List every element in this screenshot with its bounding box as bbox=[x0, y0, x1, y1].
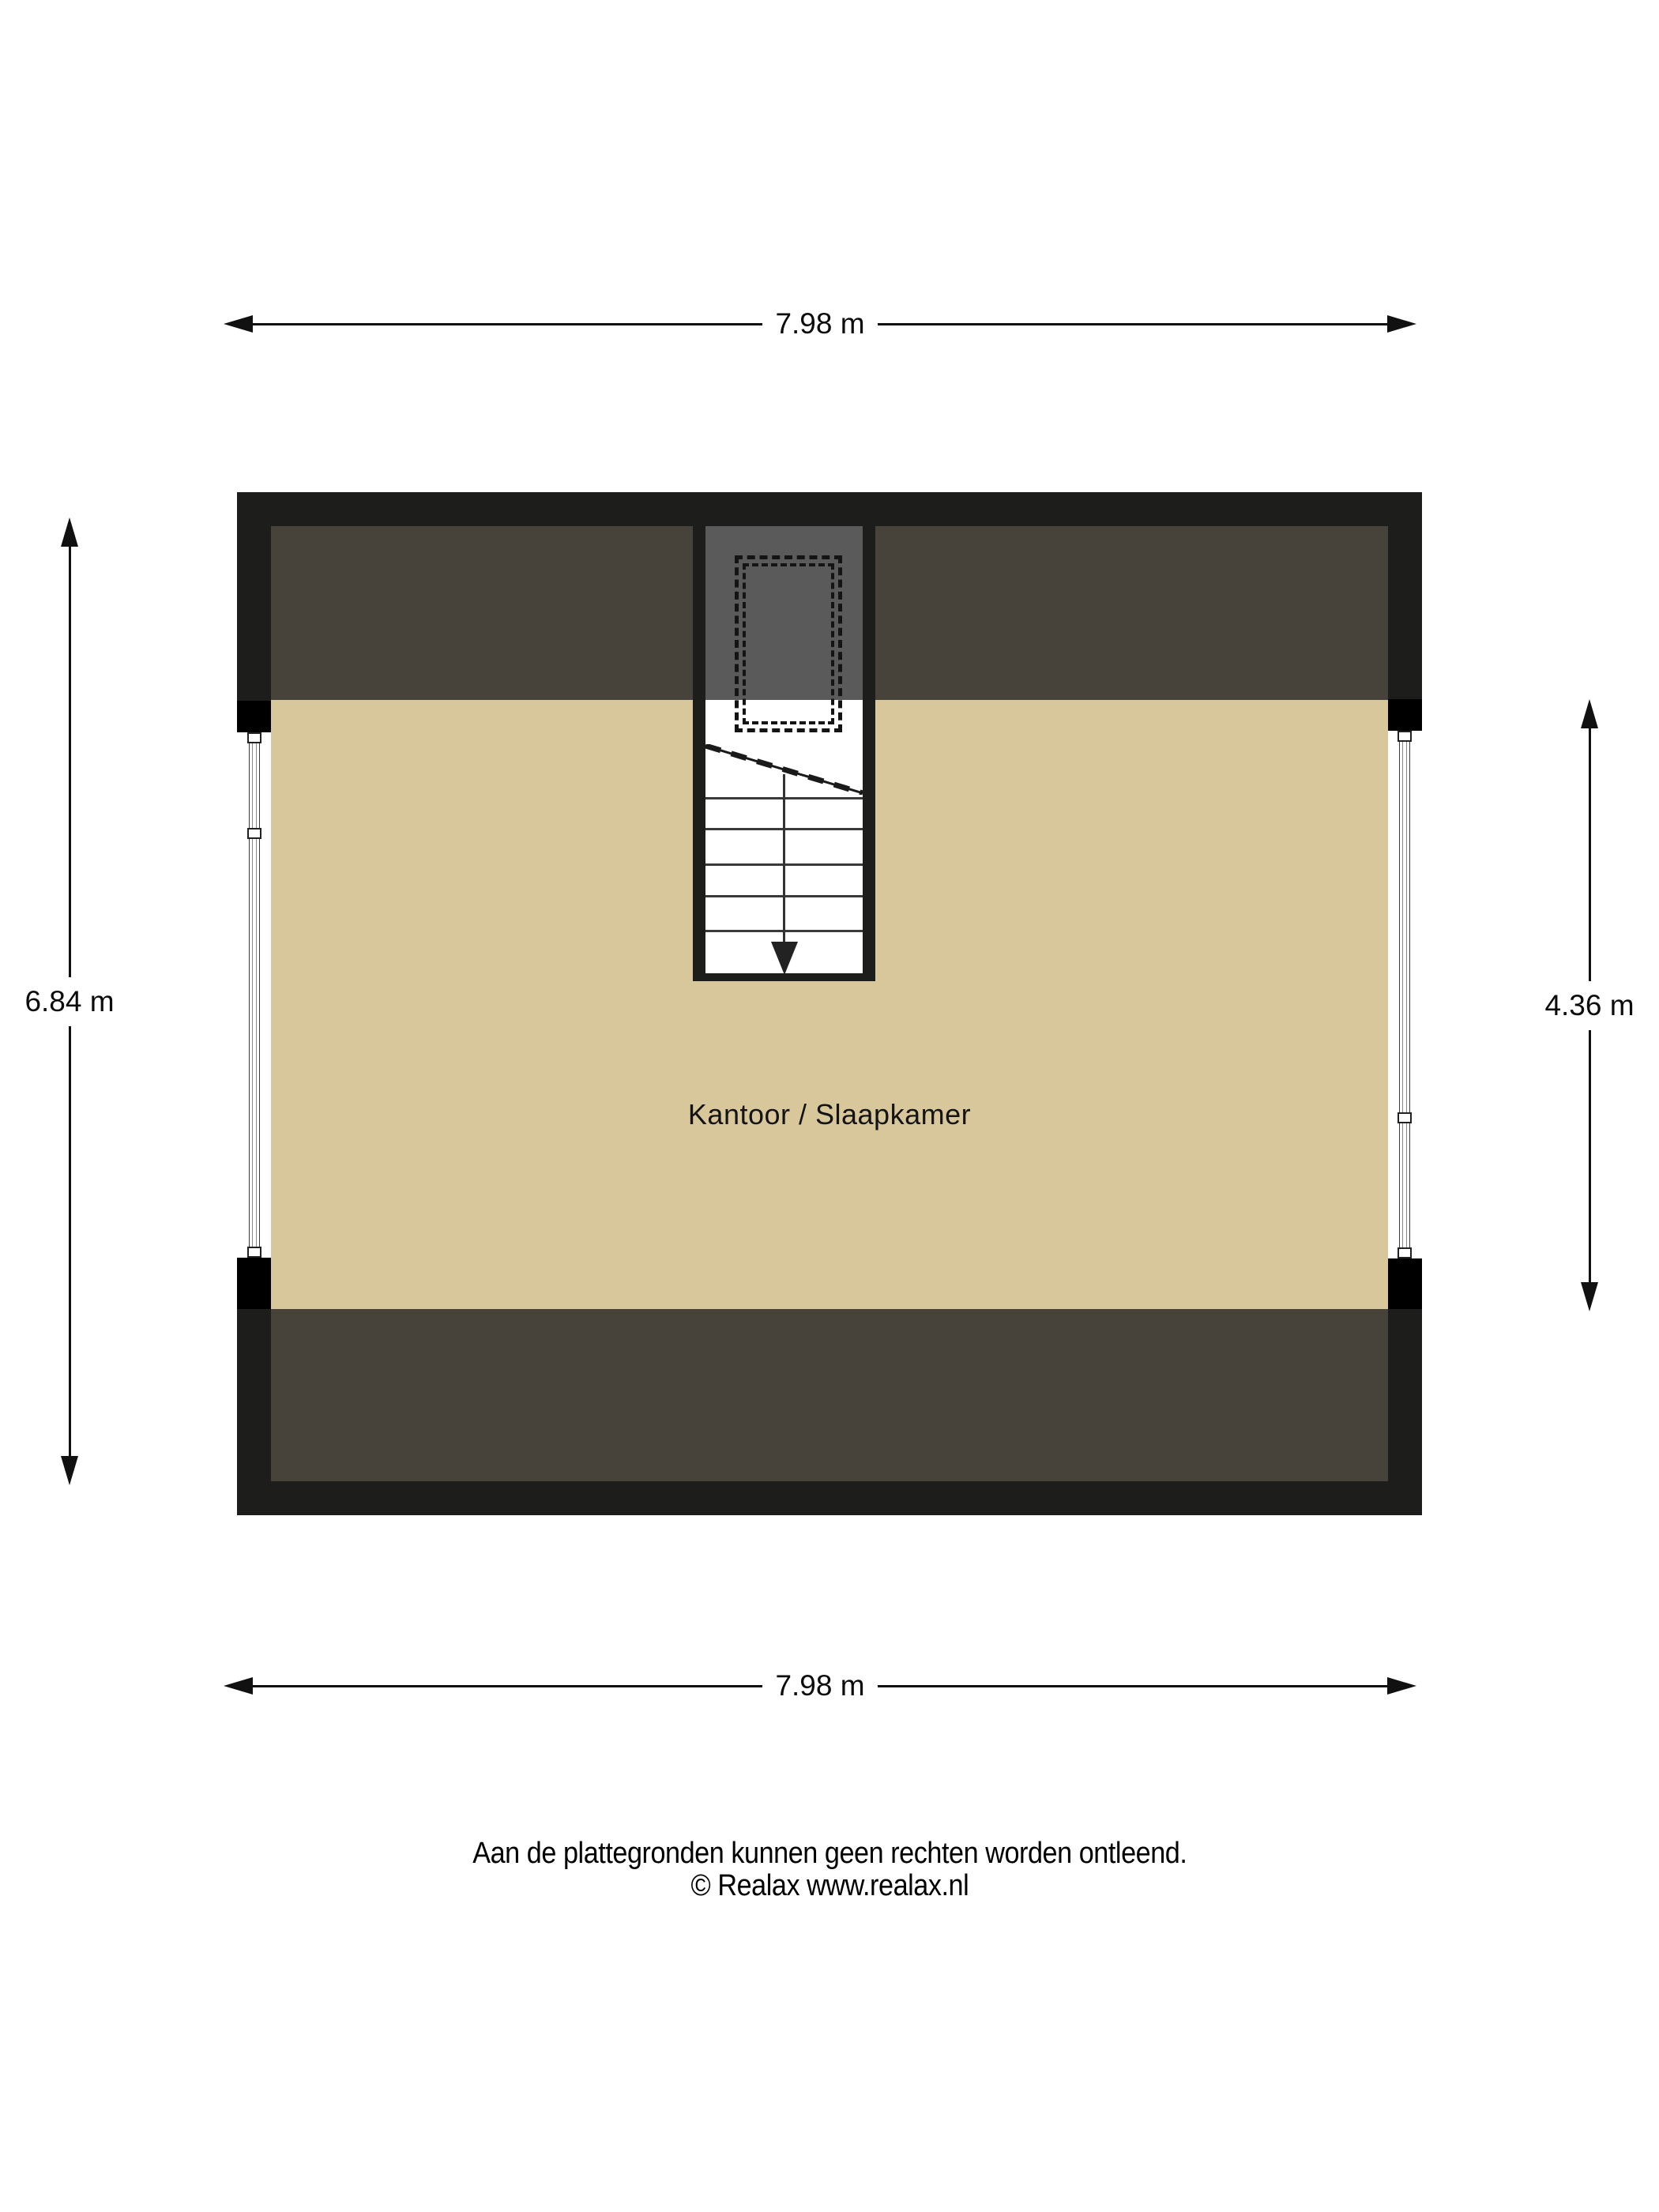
dimension-top: 7.98 m bbox=[224, 310, 1416, 338]
dimension-top-label: 7.98 m bbox=[762, 307, 877, 340]
dimension-line bbox=[1589, 1030, 1591, 1283]
left-window-jamb-upper bbox=[237, 701, 271, 732]
arrowhead-down-icon bbox=[1581, 1282, 1598, 1311]
left-window-frame-cap-middle bbox=[247, 828, 261, 839]
dimension-left-label: 6.84 m bbox=[24, 977, 114, 1026]
arrowhead-up-icon bbox=[1581, 699, 1598, 728]
right-window-glass-lower bbox=[1399, 1123, 1410, 1247]
arrowhead-left-icon bbox=[224, 1677, 253, 1695]
room-label: Kantoor / Slaapkamer bbox=[237, 1098, 1422, 1131]
left-window-frame-cap-bottom bbox=[247, 1247, 261, 1258]
right-window-frame-cap-middle bbox=[1398, 1112, 1412, 1123]
copyright-text: © Realax www.realax.nl bbox=[0, 1869, 1659, 1903]
arrowhead-down-icon bbox=[61, 1456, 78, 1485]
dimension-right: 4.36 m bbox=[1534, 699, 1645, 1311]
right-window-jamb-lower bbox=[1388, 1258, 1422, 1309]
arrowhead-right-icon bbox=[1387, 315, 1416, 333]
right-window-frame-cap-top bbox=[1398, 731, 1412, 742]
disclaimer-text: Aan de plattegronden kunnen geen rechten… bbox=[0, 1837, 1659, 1871]
arrowhead-up-icon bbox=[61, 517, 78, 547]
dimension-bottom-label: 7.98 m bbox=[762, 1669, 877, 1702]
floor-plan: Kantoor / Slaapkamer bbox=[237, 492, 1422, 1515]
dimension-left: 6.84 m bbox=[14, 517, 125, 1485]
stairwell-left-wall bbox=[693, 526, 705, 981]
floorplan-page: { "floorplan": { "room_label": "Kantoor … bbox=[0, 0, 1659, 2212]
stairwell-bottom-wall bbox=[693, 973, 875, 981]
right-window-jamb-upper bbox=[1388, 699, 1422, 731]
attic-area-bottom bbox=[271, 1309, 1388, 1481]
dimension-line bbox=[878, 323, 1387, 325]
arrowhead-right-icon bbox=[1387, 1677, 1416, 1695]
left-window-jamb-lower bbox=[237, 1258, 271, 1309]
dimension-right-label: 4.36 m bbox=[1544, 981, 1634, 1030]
dimension-line bbox=[1589, 728, 1591, 981]
dimension-line bbox=[69, 547, 71, 977]
dimension-line bbox=[253, 323, 762, 325]
vide-dashed-outline-inner bbox=[743, 563, 834, 724]
stair-direction-line bbox=[783, 774, 785, 943]
left-window-glass-upper bbox=[249, 743, 260, 828]
stair-down-arrow-icon bbox=[771, 942, 798, 975]
right-window-glass-upper bbox=[1399, 742, 1410, 1112]
left-window-glass-lower bbox=[249, 839, 260, 1247]
dimension-line bbox=[878, 1685, 1387, 1687]
dimension-line bbox=[69, 1026, 71, 1457]
stairwell-right-wall bbox=[863, 526, 875, 981]
arrowhead-left-icon bbox=[224, 315, 253, 333]
disclaimer-text-line: Aan de plattegronden kunnen geen rechten… bbox=[472, 1837, 1187, 1871]
dimension-bottom: 7.98 m bbox=[224, 1672, 1416, 1700]
copyright-text-line: © Realax www.realax.nl bbox=[690, 1869, 969, 1903]
left-window-frame-cap-top bbox=[247, 732, 261, 743]
stairwell bbox=[693, 526, 875, 981]
vide-dashed-outline bbox=[735, 555, 842, 732]
dimension-line bbox=[253, 1685, 762, 1687]
right-window-frame-cap-bottom bbox=[1398, 1247, 1412, 1258]
